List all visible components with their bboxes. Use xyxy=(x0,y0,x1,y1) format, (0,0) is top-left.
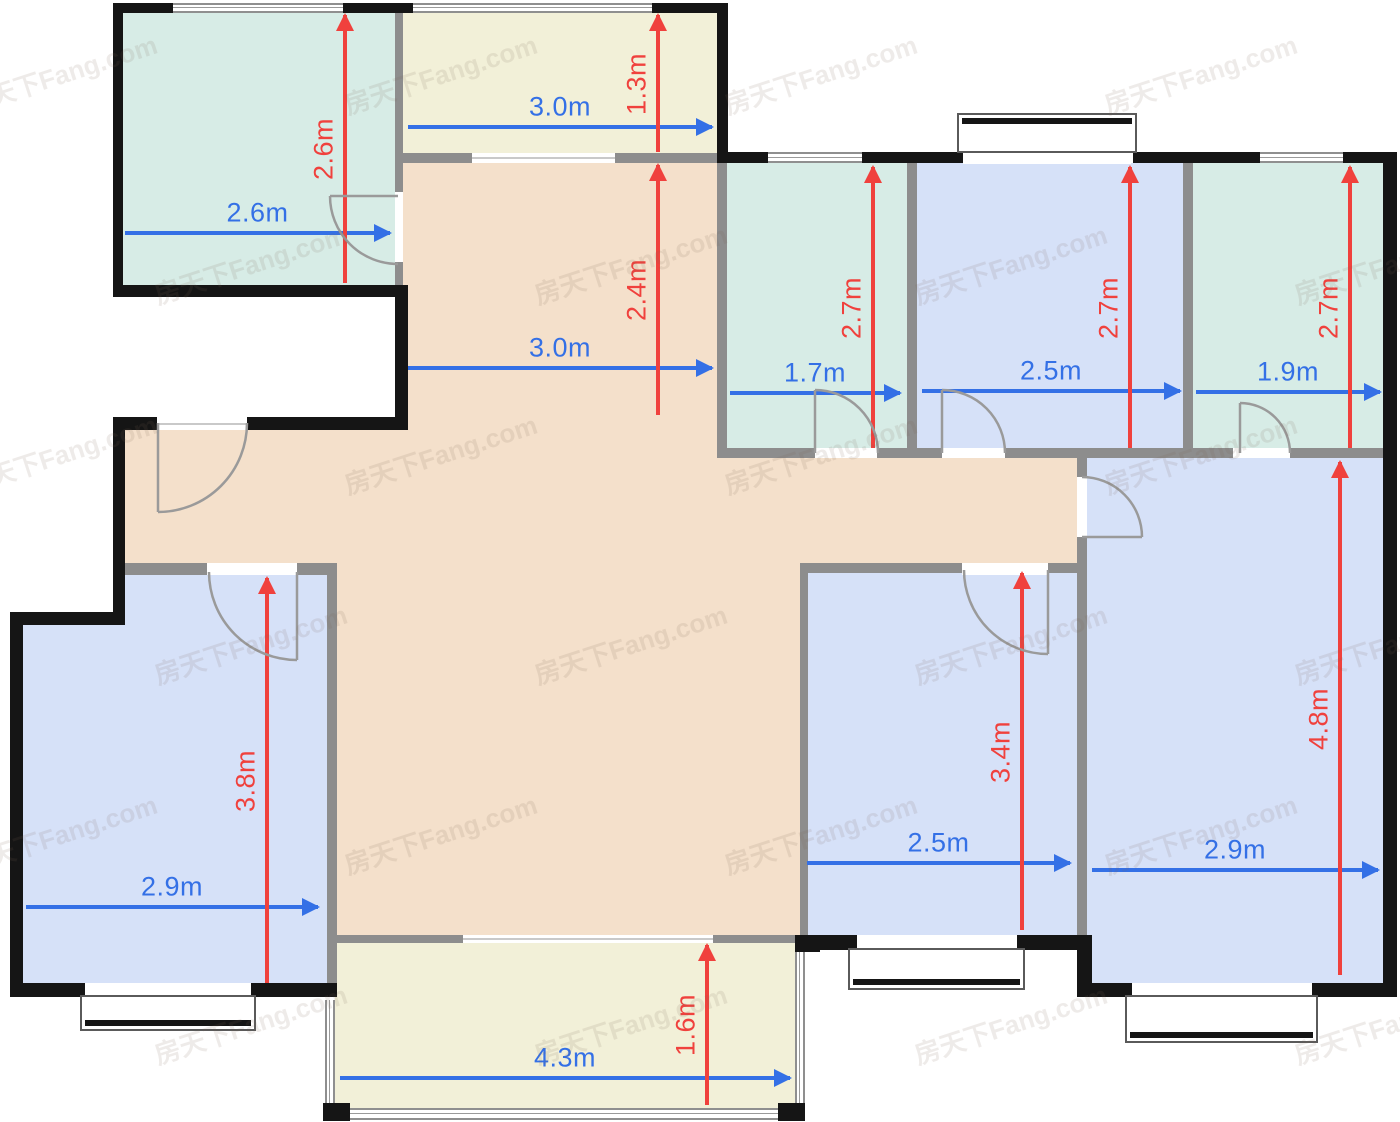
arrow-head-icon xyxy=(374,224,392,242)
room-bathroom-2 xyxy=(1193,163,1383,448)
dimension-arrow-vertical xyxy=(343,15,347,283)
exterior-wall xyxy=(10,612,125,625)
window xyxy=(1260,152,1343,163)
exterior-wall xyxy=(113,417,125,620)
room-living-dining-hall xyxy=(717,458,1077,570)
dimension-arrow-vertical xyxy=(265,578,269,983)
arrow-head-icon xyxy=(1362,861,1380,879)
interior-wall xyxy=(800,563,808,935)
wall-post xyxy=(323,1103,350,1121)
arrow-head-icon xyxy=(1013,571,1031,589)
window xyxy=(413,3,652,13)
dimension-arrow-vertical xyxy=(1020,573,1024,930)
dimension-arrow-vertical xyxy=(1338,462,1342,975)
arrow-head-icon xyxy=(864,165,882,183)
arrow-head-icon xyxy=(649,13,667,31)
exterior-wall xyxy=(717,3,728,163)
arrow-head-icon xyxy=(774,1069,792,1087)
exterior-wall xyxy=(343,3,413,13)
sliding-door-line xyxy=(463,938,713,940)
wall-post xyxy=(795,935,820,952)
dimension-label: 2.5m xyxy=(1020,356,1082,387)
bay-window xyxy=(1125,995,1318,1043)
exterior-wall xyxy=(10,612,23,997)
dimension-arrow-vertical xyxy=(656,15,660,152)
bay-window-opening xyxy=(963,152,1131,164)
dimension-arrow-vertical xyxy=(1348,167,1352,448)
arrow-head-icon xyxy=(696,118,714,136)
sliding-door-line xyxy=(472,157,615,159)
bay-window-frame xyxy=(1130,1032,1313,1038)
arrow-head-icon xyxy=(696,359,714,377)
arrow-head-icon xyxy=(1164,382,1182,400)
dimension-arrow-horizontal xyxy=(125,231,390,235)
door-opening xyxy=(962,563,1048,575)
exterior-wall xyxy=(728,152,768,163)
exterior-wall xyxy=(395,297,408,430)
bay-window-frame xyxy=(962,118,1132,124)
arrow-head-icon xyxy=(884,384,902,402)
dimension-label: 4.3m xyxy=(534,1043,596,1074)
dimension-label: 2.7m xyxy=(837,276,868,338)
dimension-label: 2.7m xyxy=(1314,276,1345,338)
dimension-arrow-horizontal xyxy=(340,1076,790,1080)
door-opening xyxy=(1233,448,1290,458)
dimension-arrow-horizontal xyxy=(26,905,318,909)
arrow-head-icon xyxy=(258,576,276,594)
arrow-head-icon xyxy=(1364,383,1382,401)
dimension-label: 2.9m xyxy=(141,872,203,903)
dimension-arrow-horizontal xyxy=(807,861,1070,865)
door-opening xyxy=(157,417,247,430)
window xyxy=(173,3,343,13)
arrow-head-icon xyxy=(1331,460,1349,478)
room-bedroom-north xyxy=(917,163,1183,448)
wall-post xyxy=(778,1103,805,1121)
room-bathroom-1 xyxy=(727,163,907,448)
arrow-head-icon xyxy=(1341,165,1359,183)
arrow-head-icon xyxy=(1054,854,1072,872)
watermark: 房天下Fang.com xyxy=(719,25,921,122)
bay-window xyxy=(848,948,1025,990)
dimension-arrow-vertical xyxy=(656,165,660,415)
room-living-dining-hall xyxy=(403,163,717,433)
bay-window xyxy=(957,113,1137,153)
window xyxy=(325,1000,335,1108)
exterior-wall xyxy=(113,285,408,297)
dimension-label: 2.5m xyxy=(907,828,969,859)
dimension-label: 3.8m xyxy=(231,749,262,811)
dimension-arrow-horizontal xyxy=(922,389,1180,393)
room-balcony-south xyxy=(335,943,795,1108)
dimension-arrow-vertical xyxy=(705,945,709,1105)
dimension-label: 1.9m xyxy=(1257,357,1319,388)
door-opening xyxy=(463,935,713,943)
dimension-label: 2.4m xyxy=(622,259,653,321)
arrow-head-icon xyxy=(1121,165,1139,183)
dimension-label: 3.4m xyxy=(986,720,1017,782)
sliding-door-line xyxy=(157,423,247,425)
bay-window-frame xyxy=(853,979,1020,985)
dimension-label: 3.0m xyxy=(529,92,591,123)
bay-window xyxy=(80,995,256,1031)
exterior-wall xyxy=(862,152,963,163)
dimension-label: 1.3m xyxy=(622,52,653,114)
room-bedroom-west xyxy=(125,570,327,983)
window xyxy=(350,1108,778,1120)
room-living-dining-hall xyxy=(125,430,717,570)
interior-wall xyxy=(717,163,727,458)
window xyxy=(795,952,805,1103)
exterior-wall xyxy=(1133,152,1260,163)
dimension-label: 1.6m xyxy=(671,994,702,1056)
dimension-arrow-horizontal xyxy=(1196,390,1380,394)
bay-window-frame xyxy=(85,1020,251,1026)
interior-wall xyxy=(327,563,337,988)
window xyxy=(768,152,862,163)
dimension-arrow-vertical xyxy=(1128,167,1132,448)
exterior-wall xyxy=(1383,152,1397,997)
exterior-wall xyxy=(113,3,123,297)
dimension-label: 3.0m xyxy=(529,333,591,364)
dimension-label: 2.7m xyxy=(1094,276,1125,338)
room-bedroom-west xyxy=(23,620,127,983)
arrow-head-icon xyxy=(302,898,320,916)
dimension-label: 1.7m xyxy=(784,358,846,389)
room-living-dining-hall xyxy=(337,570,800,935)
arrow-head-icon xyxy=(698,943,716,961)
dimension-arrow-horizontal xyxy=(408,125,712,129)
room-kitchen-top-left xyxy=(123,13,395,285)
arrow-head-icon xyxy=(336,13,354,31)
door-opening xyxy=(207,563,297,575)
door-opening xyxy=(472,153,615,163)
dimension-label: 2.6m xyxy=(309,118,340,180)
interior-wall xyxy=(907,163,917,448)
room-bedroom-south xyxy=(805,570,1077,935)
door-opening xyxy=(815,448,877,458)
floorplan: 2.6m3.0m3.0m1.7m2.5m1.9m2.9m2.5m2.9m4.3m… xyxy=(0,0,1400,1122)
arrow-head-icon xyxy=(649,163,667,181)
dimension-arrow-vertical xyxy=(871,167,875,448)
door-opening xyxy=(1077,477,1087,537)
dimension-arrow-horizontal xyxy=(1092,868,1378,872)
dimension-label: 2.6m xyxy=(226,198,288,229)
dimension-arrow-horizontal xyxy=(408,366,712,370)
room-balcony-north xyxy=(403,13,717,153)
watermark: 房天下Fang.com xyxy=(1099,25,1301,122)
dimension-label: 2.9m xyxy=(1204,835,1266,866)
door-opening xyxy=(395,192,403,262)
dimension-label: 4.8m xyxy=(1304,687,1335,749)
interior-wall xyxy=(1183,163,1193,448)
door-opening xyxy=(942,448,1005,458)
